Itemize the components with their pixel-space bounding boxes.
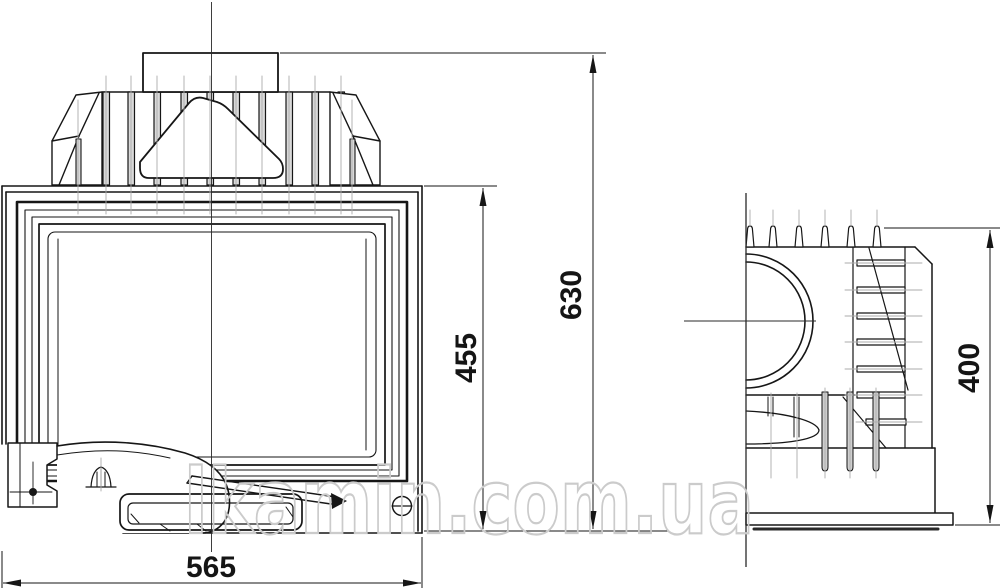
drawing-canvas: 565 455 630 400 lkamin (0, 0, 1000, 588)
dimension-door-height-label: 455 (450, 333, 483, 383)
side-view (746, 210, 953, 529)
door-frames (17, 202, 407, 481)
fin-end-cap-left (52, 92, 102, 185)
door-glass (48, 232, 376, 457)
arrow-up (590, 55, 597, 73)
flue-collar (143, 53, 278, 92)
arrow-right (403, 580, 421, 587)
fin-end-cap-right (330, 92, 380, 185)
watermark-text: lkamin.com.ua (184, 450, 754, 555)
dimension-width-label: 565 (186, 551, 236, 584)
side-body-outline (746, 247, 935, 513)
side-base (746, 513, 953, 529)
side-top-fins (746, 226, 915, 247)
arrow-up (987, 230, 994, 248)
dimension-depth: 400 (884, 228, 1000, 525)
arrow-down (987, 505, 994, 523)
arrow-left (3, 580, 21, 587)
rear-bottom-fins (822, 392, 879, 471)
dimension-overall-height-label: 630 (555, 270, 588, 320)
arrow-up (480, 188, 487, 206)
technical-drawing: 565 455 630 400 lkamin (0, 0, 1000, 588)
dimension-depth-label: 400 (953, 343, 986, 393)
latch-block (8, 443, 57, 507)
side-ash-lip (746, 397, 819, 444)
